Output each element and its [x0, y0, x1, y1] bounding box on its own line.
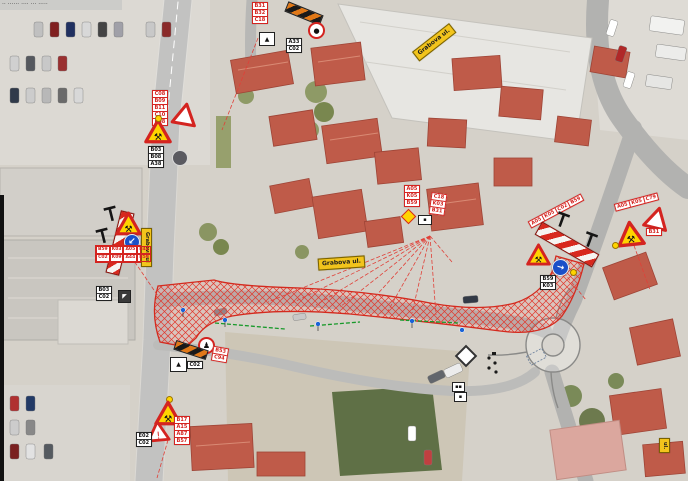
sign-code-box: B31 — [646, 228, 662, 236]
sign-code-box: B31 B32 C18 — [252, 2, 268, 24]
svg-text:⚒: ⚒ — [535, 254, 543, 264]
roadworks-triangle-icon: ⚒ — [526, 243, 551, 266]
marker-plate: ▪ — [418, 215, 432, 225]
pedestrian-corridor-lines — [215, 320, 458, 329]
sign-plate-box: B03 C02 — [96, 286, 112, 301]
warning-lamp-icon — [155, 115, 162, 122]
warning-lamp-icon — [612, 242, 619, 249]
sign-plate-box: B03 B08 A38 — [148, 146, 164, 168]
warning-lamp-icon — [570, 269, 577, 276]
warning-triangle-icon — [170, 100, 200, 128]
svg-text:⚒: ⚒ — [626, 234, 636, 246]
title-strip: ·· ······ ···· ··· ····· — [0, 0, 122, 10]
dark-triangle-sign-icon: ▲ — [170, 357, 187, 372]
sign-plate-box: C02 — [187, 361, 203, 369]
direction-marker-icon: ◤ — [118, 290, 131, 303]
sign-code-box: B53 C94 — [211, 346, 229, 364]
marker-plate: ▪▪ — [452, 382, 465, 392]
sign-code-box: B17 A15 A87 B57 — [174, 416, 190, 445]
sign-plate-box: A33 C02 — [286, 38, 302, 53]
prohibition-sign-icon: ● — [308, 22, 325, 39]
marker-plate: ▪ — [454, 392, 467, 402]
svg-text:⚒: ⚒ — [154, 132, 162, 143]
street-label-right-edge: ul. — [659, 438, 670, 453]
sign-code-grid: B59 K03 A05 B44 C02 K09 A44 B59 — [95, 245, 141, 263]
pedestrian-crossing-sign-icon: ▲ — [259, 32, 275, 46]
sign-plate-box: B59 K03 — [540, 275, 556, 290]
sign-code-box: A05 K05 B59 — [404, 185, 420, 207]
roadworks-triangle-icon: ⚒ — [115, 211, 142, 236]
sign-plate-box: E02 C02 — [136, 432, 152, 447]
gray-sign-icon — [172, 150, 188, 166]
work-zone-corridor — [154, 256, 584, 347]
traffic-regulation-plan: ·· ······ ···· ··· ····· Grabova ul. Gra… — [0, 0, 688, 481]
sign-code-box: C18 K03 B31 — [429, 192, 448, 216]
roadworks-triangle-icon: ⚒ — [615, 219, 647, 249]
red-leader-lines — [128, 38, 650, 478]
